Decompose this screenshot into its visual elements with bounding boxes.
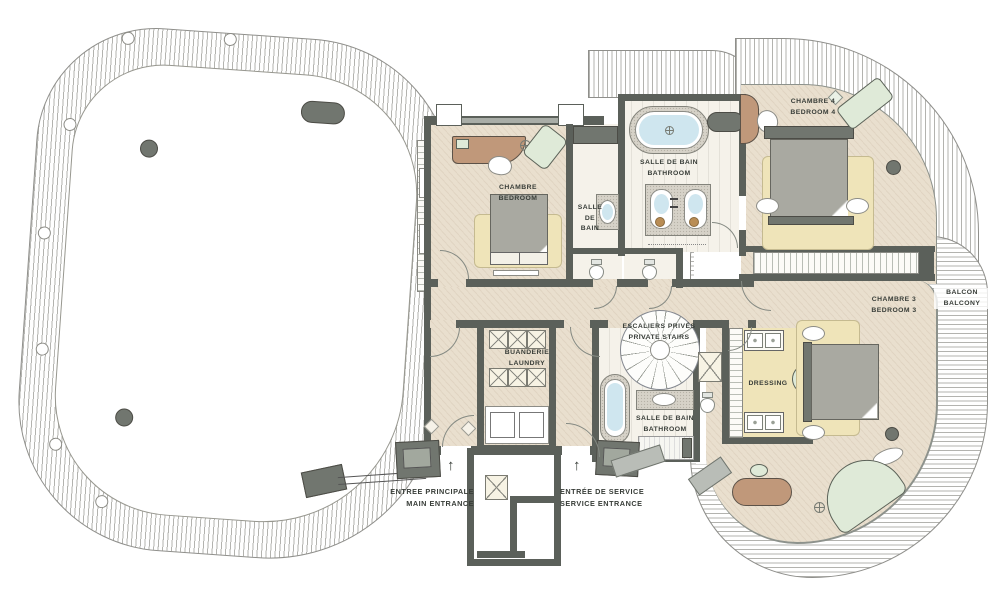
wall — [618, 94, 746, 101]
label-service-entrance-fr: ENTRÉE DE SERVICE — [560, 486, 664, 498]
pilaster — [436, 104, 462, 126]
room-label-small-bath-l1: SALLE — [567, 203, 613, 214]
wall — [510, 496, 556, 503]
room-label-bathroom-top-fr: SALLE DE BAIN — [628, 158, 710, 169]
shower-bench-icon — [682, 438, 692, 458]
pouf-icon — [846, 198, 869, 214]
room-label-bathroom-bottom: SALLE DE BAIN BATHROOM — [628, 414, 702, 435]
wall — [510, 503, 517, 555]
room-label-bathroom-bottom-fr: SALLE DE BAIN — [628, 414, 702, 425]
up-arrow-icon: ↑ — [447, 458, 455, 473]
laundry-cabinet-icon — [508, 330, 527, 349]
threshold — [648, 244, 706, 247]
laundry-cabinet-icon — [508, 368, 527, 387]
room-label-bedroom4-fr: CHAMBRE 4 — [776, 97, 850, 108]
soap-icon — [689, 217, 699, 227]
wall — [424, 116, 431, 330]
room-label-bedroom4-en: BEDROOM 4 — [776, 108, 850, 119]
room-label-dressing: DRESSING — [738, 379, 798, 390]
laundry-cabinet-icon — [489, 368, 508, 387]
room-label-balcony-en: BALCONY — [934, 299, 990, 310]
label-service-entrance: ENTRÉE DE SERVICE SERVICE ENTRANCE — [560, 486, 664, 509]
room-label-small-bath-l3: BAIN — [567, 224, 613, 235]
bed-footboard — [490, 252, 548, 265]
room-label-bathroom-bottom-en: BATHROOM — [628, 425, 702, 436]
portico-step — [402, 447, 431, 468]
pilaster — [558, 104, 584, 126]
pouf-icon — [802, 425, 825, 440]
door-gap — [438, 279, 466, 287]
room-label-bedroom3-fr: CHAMBRE 3 — [856, 295, 932, 306]
wall — [477, 551, 525, 558]
laundry-cabinet-icon — [527, 368, 546, 387]
bench-icon — [768, 216, 854, 225]
room-label-balcony-fr: BALCON — [934, 288, 990, 299]
wall — [624, 248, 683, 254]
wardrobe-cell — [765, 333, 781, 348]
sink-water — [654, 194, 669, 214]
wardrobe-cell — [765, 415, 781, 430]
bed-fold — [862, 403, 877, 418]
room-label-laundry-en: LAUNDRY — [492, 359, 562, 370]
wardrobe-cell — [747, 415, 763, 430]
bench-icon — [493, 270, 539, 276]
label-main-entrance-en: MAIN ENTRANCE — [378, 498, 474, 510]
shaft-icon — [485, 475, 508, 500]
headboard-icon — [764, 126, 854, 139]
wall — [676, 248, 683, 288]
room-label-laundry: BUANDERIE LAUNDRY — [492, 348, 562, 369]
stool-icon — [885, 427, 899, 441]
room-label-bedroom3-en: BEDROOM 3 — [856, 306, 932, 317]
label-main-entrance: ENTREE PRINCIPALE MAIN ENTRANCE — [378, 486, 474, 509]
room-label-laundry-fr: BUANDERIE — [492, 348, 562, 359]
wall — [739, 274, 935, 281]
wall — [424, 279, 754, 287]
terrace-deck — [47, 58, 426, 531]
room-label-bathroom-top: SALLE DE BAIN BATHROOM — [628, 158, 710, 179]
spiral-stairs-hub — [650, 340, 670, 360]
door-gap — [739, 196, 746, 230]
tap-icon — [670, 206, 678, 208]
laundry-cabinet-icon — [489, 330, 508, 349]
washer-icon — [490, 412, 515, 438]
pouf-icon — [756, 198, 779, 214]
room-label-stairs: ESCALIERS PRIVÉS PRIVATE STAIRS — [616, 322, 702, 343]
laundry-cabinet-icon — [527, 330, 546, 349]
roof-vent-icon — [300, 100, 345, 125]
room-label-balcony: BALCON BALCONY — [934, 288, 990, 309]
bathtub-water — [607, 383, 623, 431]
elevator-icon — [698, 352, 722, 382]
toilet-icon — [642, 259, 657, 280]
label-main-entrance-fr: ENTREE PRINCIPALE — [378, 486, 474, 498]
label-service-entrance-en: SERVICE ENTRANCE — [560, 498, 664, 510]
pouf-icon — [750, 464, 768, 477]
room-label-bathroom-top-en: BATHROOM — [628, 169, 710, 180]
sink-icon — [652, 393, 676, 406]
room-label-bedroom-en: BEDROOM — [480, 194, 556, 205]
room-label-bedroom-fr: CHAMBRE — [480, 183, 556, 194]
wall — [919, 246, 934, 281]
room-label-bedroom4: CHAMBRE 4 BEDROOM 4 — [776, 97, 850, 118]
room-label-small-bath-l2: DE — [567, 214, 613, 225]
toilet-icon — [589, 259, 604, 280]
room-label-small-bath: SALLE DE BAIN — [567, 203, 613, 235]
sink-water — [688, 194, 703, 214]
wall — [722, 437, 813, 444]
up-arrow-icon: ↑ — [573, 458, 581, 473]
tap-icon — [670, 198, 678, 200]
soap-icon — [655, 217, 665, 227]
closet-icon — [753, 252, 919, 274]
room-label-bedroom: CHAMBRE BEDROOM — [480, 183, 556, 204]
wall — [549, 320, 556, 452]
cabinet-icon — [573, 126, 618, 144]
floor-plan: CHAMBRE BEDROOM SALLE DE BAIN SALLE DE B… — [0, 0, 991, 600]
room-label-bedroom3: CHAMBRE 3 BEDROOM 3 — [856, 295, 932, 316]
toilet-icon — [700, 392, 715, 413]
bench-icon — [707, 112, 744, 132]
window — [452, 118, 562, 123]
desk-accessory-icon — [456, 139, 469, 149]
wall — [618, 94, 625, 256]
room-label-stairs-fr: ESCALIERS PRIVÉS — [616, 322, 702, 333]
side-table-icon — [886, 160, 901, 175]
dryer-icon — [519, 412, 544, 438]
wall — [570, 248, 625, 254]
daybed-icon — [732, 478, 792, 506]
room-label-stairs-en: PRIVATE STAIRS — [616, 333, 702, 344]
wall — [477, 320, 484, 452]
room-label-dressing-text: DRESSING — [738, 379, 798, 390]
ceiling-light-icon — [814, 502, 825, 513]
drain-icon — [665, 126, 674, 135]
pouf-icon — [802, 326, 825, 341]
